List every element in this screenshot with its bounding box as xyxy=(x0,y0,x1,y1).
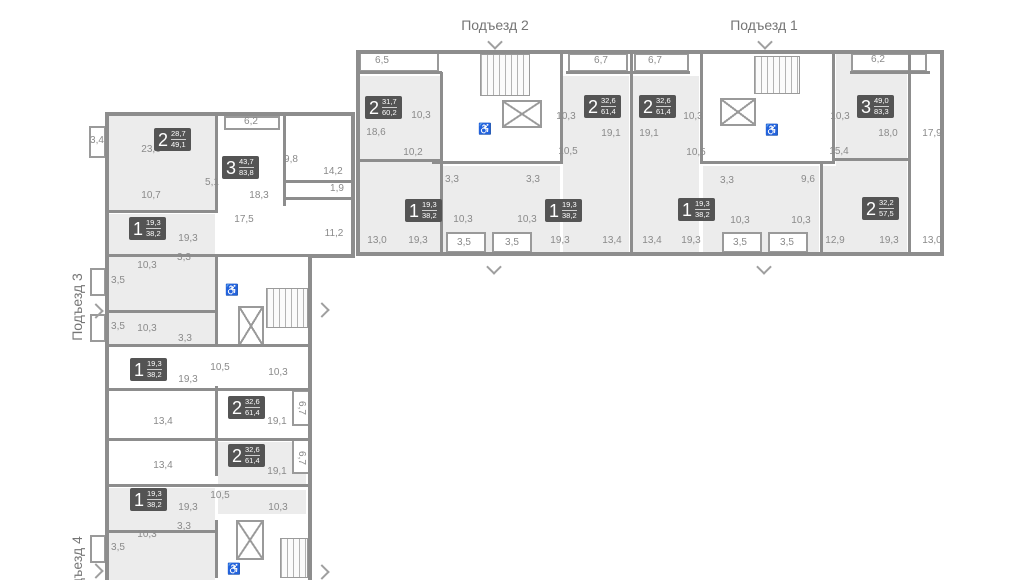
living-area: 32,6 xyxy=(245,446,260,456)
room-area-label: 19,3 xyxy=(178,503,197,513)
balcony xyxy=(359,52,439,72)
apartment-badge[interactable]: 232,661,4 xyxy=(584,95,621,118)
total-area: 61,4 xyxy=(656,108,671,116)
room-area-label: 13,4 xyxy=(153,417,172,427)
total-area: 38,2 xyxy=(695,211,710,219)
wall xyxy=(351,112,355,258)
wall xyxy=(105,310,218,313)
total-area: 38,2 xyxy=(146,230,161,238)
rooms-count: 3 xyxy=(861,98,871,116)
apartment-badge[interactable]: 119,338,2 xyxy=(545,199,582,222)
room-area-label: 3,3 xyxy=(178,334,192,344)
staircase xyxy=(266,288,308,328)
wall xyxy=(908,52,911,254)
wall xyxy=(105,344,311,347)
wall xyxy=(432,161,562,164)
room-area-label: 6,7 xyxy=(296,401,306,415)
room-area-label: 10,3 xyxy=(556,112,575,122)
chevron-down-icon[interactable] xyxy=(757,34,773,50)
wall xyxy=(105,484,311,487)
room-area-label: 18,0 xyxy=(878,129,897,139)
total-area: 38,2 xyxy=(147,501,162,509)
room-area-label: 9,8 xyxy=(284,155,298,165)
apartment-badge[interactable]: 119,338,2 xyxy=(130,358,167,381)
apartment-badge[interactable]: 231,760,2 xyxy=(365,96,402,119)
room-area-label: 19,1 xyxy=(639,129,658,139)
elevator-shaft xyxy=(238,306,264,346)
wall xyxy=(632,71,690,74)
chevron-down-icon[interactable] xyxy=(756,259,772,275)
room-area-label: 10,3 xyxy=(730,216,749,226)
room-area-label: 10,3 xyxy=(683,112,702,122)
room-area-label: 1,9 xyxy=(330,184,344,194)
room-area-label: 11,2 xyxy=(325,229,344,239)
wall xyxy=(215,112,218,212)
room-area-label: 17,9 xyxy=(922,129,941,139)
staircase xyxy=(280,538,308,578)
apartment-badge[interactable]: 232,661,4 xyxy=(228,396,265,419)
rooms-count: 1 xyxy=(682,201,692,219)
room-area-label: 10,5 xyxy=(210,491,229,501)
rooms-count: 2 xyxy=(232,399,242,417)
apartment-badge[interactable]: 343,783,8 xyxy=(222,156,259,179)
balcony xyxy=(90,535,106,563)
living-area: 19,3 xyxy=(147,360,162,370)
wall xyxy=(850,71,930,74)
room-area-label: 13,0 xyxy=(922,236,941,246)
room-area-label: 18,3 xyxy=(249,191,268,201)
room-area-label: 15,4 xyxy=(829,147,848,157)
chevron-right-icon[interactable] xyxy=(314,302,330,318)
wall xyxy=(105,254,355,257)
room-area-label: 5,1 xyxy=(205,178,219,188)
wall xyxy=(566,71,632,74)
total-area: 61,4 xyxy=(601,108,616,116)
elevator-shaft xyxy=(720,98,756,126)
area-values: 28,749,1 xyxy=(171,130,186,149)
apartment-badge[interactable]: 119,338,2 xyxy=(405,199,442,222)
area-values: 32,661,4 xyxy=(245,398,260,417)
room-area-label: 19,3 xyxy=(550,236,569,246)
apartment-badge[interactable]: 228,749,1 xyxy=(154,128,191,151)
rooms-count: 2 xyxy=(369,99,379,117)
room-area-label: 3,3 xyxy=(177,522,191,532)
area-values: 19,338,2 xyxy=(146,219,161,238)
room-area-label: 3,5 xyxy=(111,322,125,332)
wall xyxy=(105,112,355,116)
living-area: 32,6 xyxy=(601,97,616,107)
room-area-label: 13,4 xyxy=(153,461,172,471)
wall xyxy=(820,164,823,254)
apartment-badge[interactable]: 349,083,3 xyxy=(857,95,894,118)
wall xyxy=(700,161,833,164)
total-area: 38,2 xyxy=(147,371,162,379)
room-area-label: 18,6 xyxy=(366,128,385,138)
wall xyxy=(215,520,218,578)
total-area: 61,4 xyxy=(245,457,260,465)
room-area-label: 17,5 xyxy=(234,215,253,225)
apartment-badge[interactable]: 119,338,2 xyxy=(130,488,167,511)
apartment-badge[interactable]: 119,338,2 xyxy=(129,217,166,240)
rooms-count: 3 xyxy=(226,159,236,177)
area-values: 19,338,2 xyxy=(422,201,437,220)
elevator-shaft xyxy=(236,520,264,560)
living-area: 32,6 xyxy=(245,398,260,408)
living-area: 19,3 xyxy=(147,490,162,500)
chevron-down-icon[interactable] xyxy=(487,34,503,50)
wall xyxy=(105,388,311,391)
rooms-count: 2 xyxy=(588,98,598,116)
room-area-label: 13,0 xyxy=(367,236,386,246)
room-area-label: 6,7 xyxy=(296,451,306,465)
room-area-label: 10,5 xyxy=(558,147,577,157)
rooms-count: 1 xyxy=(133,220,143,238)
room-area-label: 9,6 xyxy=(801,175,815,185)
room-area-label: 19,3 xyxy=(178,375,197,385)
room-area-label: 10,2 xyxy=(403,148,422,158)
room-area-label: 10,7 xyxy=(141,191,160,201)
chevron-right-icon[interactable] xyxy=(88,563,104,579)
staircase xyxy=(480,54,530,96)
area-values: 32,661,4 xyxy=(656,97,671,116)
total-area: 61,4 xyxy=(245,409,260,417)
living-area: 28,7 xyxy=(171,130,186,140)
room-area-label: 19,3 xyxy=(879,236,898,246)
room-area-label: 10,3 xyxy=(137,530,156,540)
apartment-badge[interactable]: 232,661,4 xyxy=(639,95,676,118)
living-area: 43,7 xyxy=(239,158,254,168)
room-area-label: 3,5 xyxy=(733,238,747,248)
room-area-label: 19,1 xyxy=(267,417,286,427)
area-values: 31,760,2 xyxy=(382,98,397,117)
room-area-label: 3,5 xyxy=(111,276,125,286)
area-values: 19,338,2 xyxy=(147,490,162,509)
apartment-badge[interactable]: 232,257,5 xyxy=(862,197,899,220)
wall xyxy=(630,50,633,254)
living-area: 19,3 xyxy=(146,219,161,229)
balcony xyxy=(851,53,927,72)
room-area-label: 13,4 xyxy=(602,236,621,246)
wall xyxy=(356,50,944,54)
wheelchair-icon: ♿ xyxy=(225,286,239,297)
room-area-label: 3,5 xyxy=(505,238,519,248)
room-area-label: 3,5 xyxy=(780,238,794,248)
room-area-label: 6,2 xyxy=(244,117,258,127)
section-label-podezd-2[interactable]: Подъезд 2 xyxy=(461,17,529,33)
total-area: 38,2 xyxy=(422,212,437,220)
rooms-count: 1 xyxy=(134,491,144,509)
area-values: 49,083,3 xyxy=(874,97,889,116)
total-area: 57,5 xyxy=(879,210,894,218)
living-area: 19,3 xyxy=(695,200,710,210)
area-values: 19,338,2 xyxy=(695,200,710,219)
wall xyxy=(105,438,311,441)
area-values: 19,338,2 xyxy=(562,201,577,220)
wall xyxy=(358,71,442,74)
room-area-label: 10,5 xyxy=(686,148,705,158)
section-label-podezd-1[interactable]: Подъезд 1 xyxy=(730,17,798,33)
wall xyxy=(215,254,218,344)
living-area: 31,7 xyxy=(382,98,397,108)
wall xyxy=(940,50,944,256)
room-area-label: 3,3 xyxy=(526,175,540,185)
wall xyxy=(308,254,312,580)
area-values: 19,338,2 xyxy=(147,360,162,379)
wall xyxy=(105,210,218,213)
wall xyxy=(215,386,218,476)
wall xyxy=(105,530,218,533)
living-area: 19,3 xyxy=(422,201,437,211)
area-values: 32,661,4 xyxy=(245,446,260,465)
room-area-label: 14,2 xyxy=(323,167,342,177)
floorplan-canvas: Подъезд 2 Подъезд 1 Подъезд 3 Подъезд 4 … xyxy=(0,0,1024,580)
chevron-down-icon[interactable] xyxy=(486,259,502,275)
area-values: 43,783,8 xyxy=(239,158,254,177)
chevron-right-icon[interactable] xyxy=(314,564,330,580)
room-area-label: 3,4 xyxy=(90,136,104,146)
wheelchair-icon: ♿ xyxy=(478,125,492,136)
total-area: 49,1 xyxy=(171,141,186,149)
living-area: 49,0 xyxy=(874,97,889,107)
rooms-count: 2 xyxy=(643,98,653,116)
room-area-label: 10,3 xyxy=(791,216,810,226)
rooms-count: 1 xyxy=(409,202,419,220)
section-label-podezd-3[interactable]: Подъезд 3 xyxy=(69,273,85,341)
room-area-label: 19,1 xyxy=(601,129,620,139)
room-area-label: 10,5 xyxy=(210,363,229,373)
wall xyxy=(356,252,944,256)
room-area-label: 10,3 xyxy=(268,503,287,513)
area-values: 32,661,4 xyxy=(601,97,616,116)
room-area-label: 6,5 xyxy=(375,56,389,66)
room-area-label: 3,5 xyxy=(111,543,125,553)
room-area-label: 19,3 xyxy=(408,236,427,246)
area-values: 32,257,5 xyxy=(879,199,894,218)
room-area-label: 3,3 xyxy=(445,175,459,185)
room-area-label: 10,3 xyxy=(268,368,287,378)
rooms-count: 2 xyxy=(158,131,168,149)
room-area-label: 12,9 xyxy=(825,236,844,246)
balcony xyxy=(90,268,106,296)
elevator-shaft xyxy=(502,100,542,128)
balcony xyxy=(90,314,106,342)
room-area-label: 19,3 xyxy=(178,234,197,244)
wheelchair-icon: ♿ xyxy=(765,126,779,137)
room-area-label: 13,4 xyxy=(642,236,661,246)
wheelchair-icon: ♿ xyxy=(227,565,241,576)
rooms-count: 1 xyxy=(549,202,559,220)
living-area: 32,2 xyxy=(879,199,894,209)
wall xyxy=(834,158,910,161)
apartment-badge[interactable]: 119,338,2 xyxy=(678,198,715,221)
room-area-label: 6,7 xyxy=(648,56,662,66)
wall xyxy=(356,50,360,256)
room-area xyxy=(218,490,306,514)
apartment-badge[interactable]: 232,661,4 xyxy=(228,444,265,467)
total-area: 60,2 xyxy=(382,109,397,117)
room-area-label: 3,3 xyxy=(177,253,191,263)
room-area-label: 3,3 xyxy=(720,176,734,186)
room-area-label: 10,3 xyxy=(517,215,536,225)
room-area-label: 6,7 xyxy=(594,56,608,66)
rooms-count: 2 xyxy=(866,200,876,218)
wall xyxy=(358,159,442,162)
staircase xyxy=(754,56,800,94)
rooms-count: 1 xyxy=(134,361,144,379)
room-area-label: 19,1 xyxy=(267,467,286,477)
living-area: 32,6 xyxy=(656,97,671,107)
wall xyxy=(285,197,353,200)
total-area: 83,8 xyxy=(239,169,254,177)
room-area-label: 10,3 xyxy=(137,324,156,334)
section-label-podezd-4[interactable]: Подъезд 4 xyxy=(69,536,85,580)
total-area: 83,3 xyxy=(874,108,889,116)
room-area-label: 19,3 xyxy=(681,236,700,246)
room-area-label: 10,3 xyxy=(137,261,156,271)
living-area: 19,3 xyxy=(562,201,577,211)
room-area-label: 10,3 xyxy=(830,112,849,122)
room-area-label: 10,3 xyxy=(411,111,430,121)
room-area-label: 3,5 xyxy=(457,238,471,248)
room-area-label: 10,3 xyxy=(453,215,472,225)
total-area: 38,2 xyxy=(562,212,577,220)
rooms-count: 2 xyxy=(232,447,242,465)
room-area-label: 6,2 xyxy=(871,55,885,65)
